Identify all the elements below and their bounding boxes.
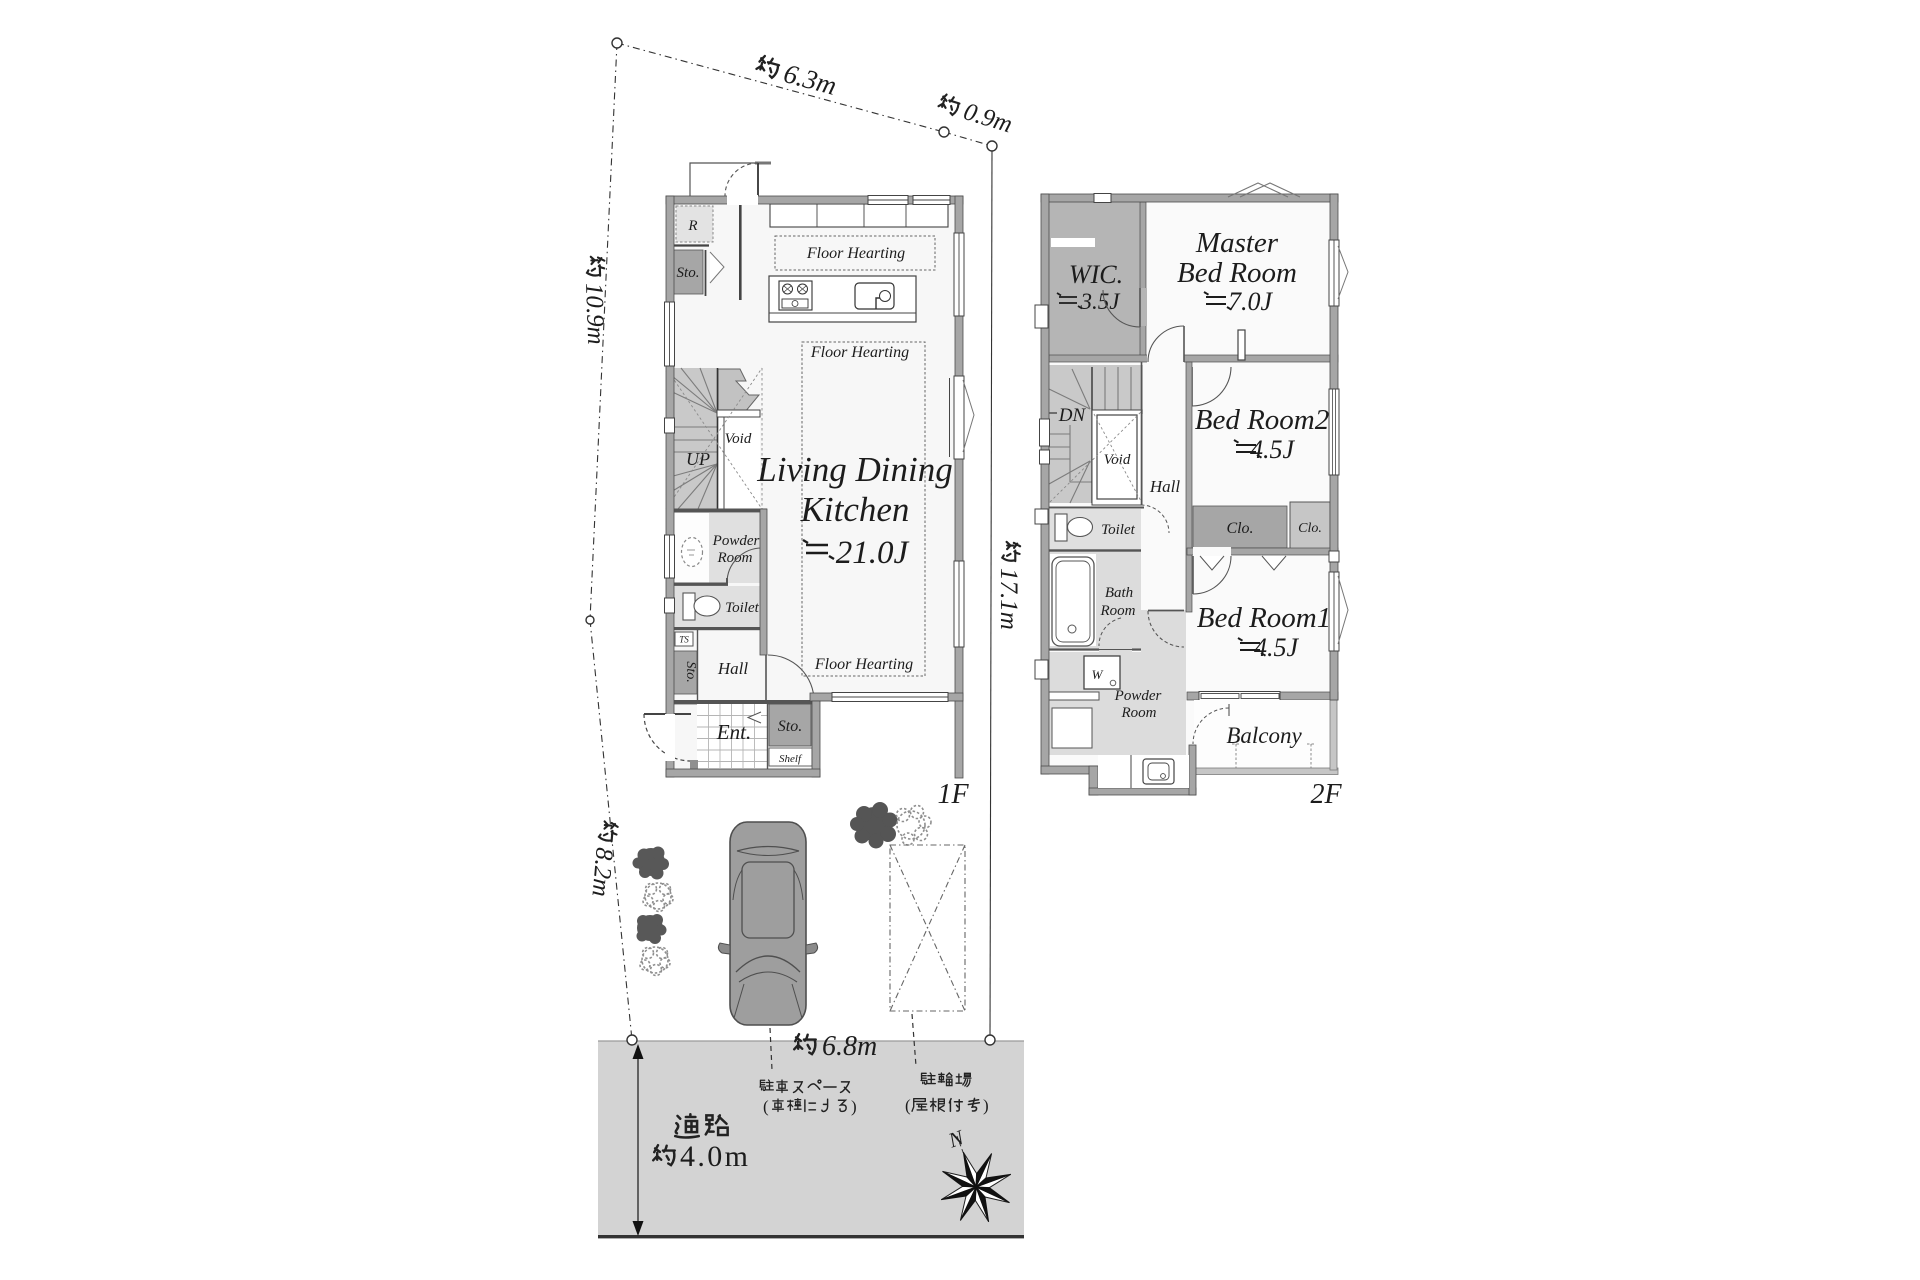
svg-text:7.0J: 7.0J xyxy=(1228,287,1274,316)
svg-text:21.0J: 21.0J xyxy=(836,535,910,571)
svg-text:Void: Void xyxy=(725,431,752,447)
svg-text:): ) xyxy=(983,1096,989,1115)
svg-text:4.5J: 4.5J xyxy=(1250,435,1296,464)
svg-text:4.5J: 4.5J xyxy=(1254,633,1300,662)
svg-text:Floor Hearting: Floor Hearting xyxy=(806,245,905,262)
svg-text:Master: Master xyxy=(1195,227,1279,259)
svg-text:Sto.: Sto. xyxy=(677,265,700,281)
svg-text:Living Dining: Living Dining xyxy=(756,450,952,489)
svg-text:Room: Room xyxy=(717,550,753,566)
svg-text:Bed Room: Bed Room xyxy=(1177,257,1297,289)
svg-text:Kitchen: Kitchen xyxy=(800,490,910,529)
svg-text:10.9m: 10.9m xyxy=(580,282,609,345)
svg-text:17.1m: 17.1m xyxy=(995,568,1022,630)
svg-text:WIC.: WIC. xyxy=(1069,260,1123,289)
svg-text:3.5J: 3.5J xyxy=(1080,289,1122,314)
svg-text:Void: Void xyxy=(1104,452,1131,468)
svg-text:6.8m: 6.8m xyxy=(822,1031,877,1062)
svg-text:DN: DN xyxy=(1058,405,1087,426)
svg-text:1F: 1F xyxy=(937,779,969,810)
svg-text:W: W xyxy=(1092,667,1104,682)
svg-text:8.2m: 8.2m xyxy=(586,846,617,897)
svg-text:Sto.: Sto. xyxy=(683,661,698,682)
svg-text:Clo.: Clo. xyxy=(1298,521,1322,536)
svg-text:Room: Room xyxy=(1121,705,1157,721)
svg-text:Toilet: Toilet xyxy=(725,600,759,616)
svg-text:Shelf: Shelf xyxy=(779,753,803,765)
svg-text:): ) xyxy=(851,1097,857,1116)
svg-text:Ent.: Ent. xyxy=(716,720,751,744)
svg-text:R: R xyxy=(687,218,697,234)
svg-text:(: ( xyxy=(905,1096,911,1115)
svg-text:TS: TS xyxy=(679,635,689,645)
svg-text:Room: Room xyxy=(1100,603,1136,619)
svg-text:Floor Hearting: Floor Hearting xyxy=(814,656,913,673)
svg-text:UP: UP xyxy=(686,449,710,469)
svg-text:Clo.: Clo. xyxy=(1226,520,1253,537)
svg-text:Powder: Powder xyxy=(712,533,760,549)
svg-text:Floor Hearting: Floor Hearting xyxy=(810,344,909,361)
svg-text:(: ( xyxy=(763,1097,769,1116)
svg-text:Hall: Hall xyxy=(1149,477,1181,496)
svg-text:Powder: Powder xyxy=(1114,688,1162,704)
svg-text:Hall: Hall xyxy=(717,659,749,678)
svg-text:Bed Room1: Bed Room1 xyxy=(1197,602,1332,634)
svg-text:Bed Room2: Bed Room2 xyxy=(1195,404,1330,436)
svg-text:2F: 2F xyxy=(1310,779,1342,810)
svg-text:Toilet: Toilet xyxy=(1101,522,1135,538)
svg-text:Bath: Bath xyxy=(1105,585,1133,601)
svg-text:4.0m: 4.0m xyxy=(680,1140,748,1173)
svg-text:Sto.: Sto. xyxy=(778,718,802,735)
